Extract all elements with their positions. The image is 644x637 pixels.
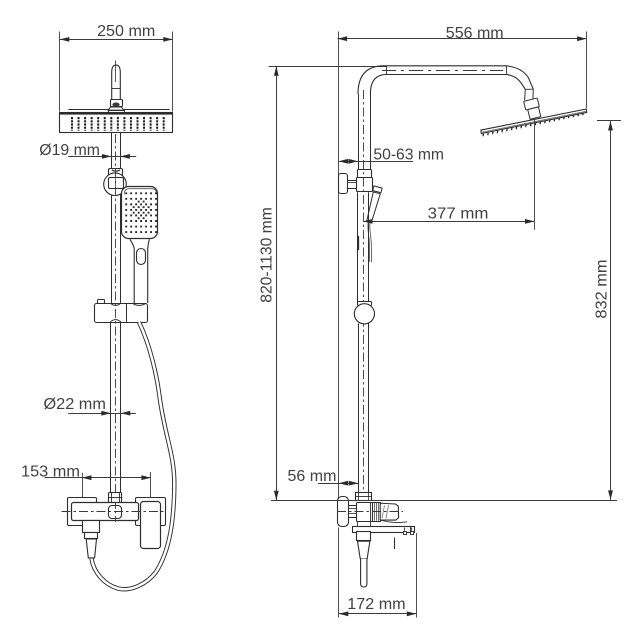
svg-text:820-1130 mm: 820-1130 mm (259, 207, 276, 303)
svg-text:832 mm: 832 mm (594, 259, 611, 318)
svg-text:Ø22 mm: Ø22 mm (44, 396, 106, 413)
svg-text:250 mm: 250 mm (97, 23, 155, 40)
svg-text:56 mm: 56 mm (288, 468, 337, 485)
svg-text:377 mm: 377 mm (428, 206, 489, 223)
svg-text:172 mm: 172 mm (347, 596, 405, 613)
svg-text:556 mm: 556 mm (446, 25, 504, 42)
svg-text:50-63 mm: 50-63 mm (373, 146, 444, 163)
